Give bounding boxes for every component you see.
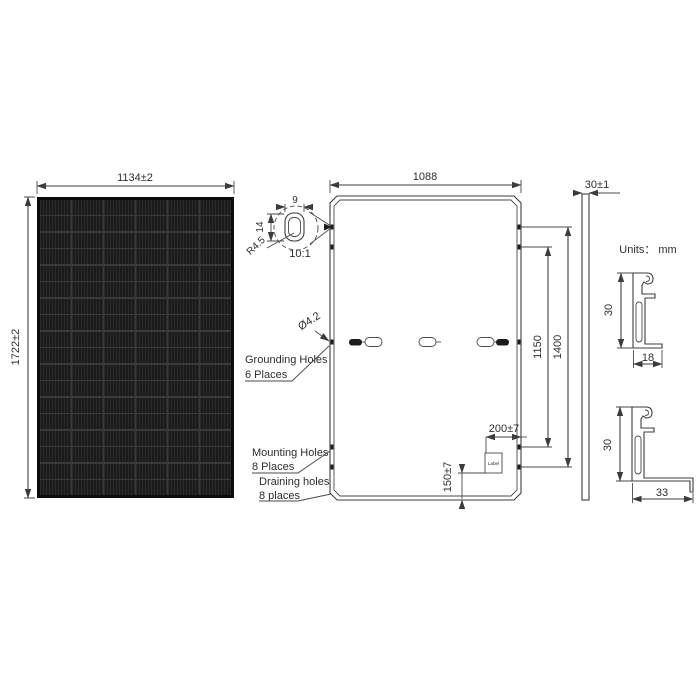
front-height-dim: 1722±2 [10,329,22,366]
front-view-dimensions: 1134±2 1722±2 [10,172,234,498]
mounting-note-line2: 8 Places [252,461,295,473]
hole-diameter-dim: Ø4.2 [296,310,323,333]
front-width-dim: 1134±2 [117,172,153,184]
detail-slot-width-dim: 9 [292,195,298,206]
detail-radius-dim: R4.5 [245,235,268,258]
draining-note-line2: 8 places [259,490,300,502]
detail-slot-height-dim: 14 [255,221,266,233]
grounding-note-line2: 6 Places [245,369,288,381]
rear-width-dimension: 1088 [330,171,521,193]
label-offset-right-dim: 200±7 [489,423,520,435]
mounting-note-line1: Mounting Holes [252,447,329,459]
side-thickness-dim: 30±1 [585,179,609,191]
detail-scale-note: 10:1 [289,248,310,260]
section-bottom-height-dim: 30 [602,439,614,451]
mounting-span-dimensions: 1150 1400 [521,227,572,467]
frame-section-bottom: 30 33 [602,407,693,503]
grounding-note-line1: Grounding Holes [245,354,328,366]
mounting-span-inner-dim: 1150 [532,335,544,359]
rear-width-dim: 1088 [413,171,437,183]
label-box-text: Label [488,461,499,466]
section-bottom-width-dim: 33 [656,487,668,499]
rear-annotations-left: Ø4.2 Grounding Holes 6 Places Mounting H… [245,310,331,502]
engineering-drawing-canvas: 1134±2 1722±2 [0,0,700,700]
mounting-span-outer-dim: 1400 [552,335,564,359]
rear-view-outline [330,196,521,500]
units-note: Units： mm [619,244,676,256]
section-top-height-dim: 30 [603,304,615,316]
draining-note-line1: Draining holes [259,476,330,488]
label-offset-bottom-dim: 150±7 [442,462,454,493]
drawing-linework: 1134±2 1722±2 [0,0,700,700]
detail-callout: 9 14 R4.5 10:1 [245,195,332,260]
frame-section-top: 30 18 [603,273,662,368]
section-top-width-dim: 18 [642,352,654,364]
